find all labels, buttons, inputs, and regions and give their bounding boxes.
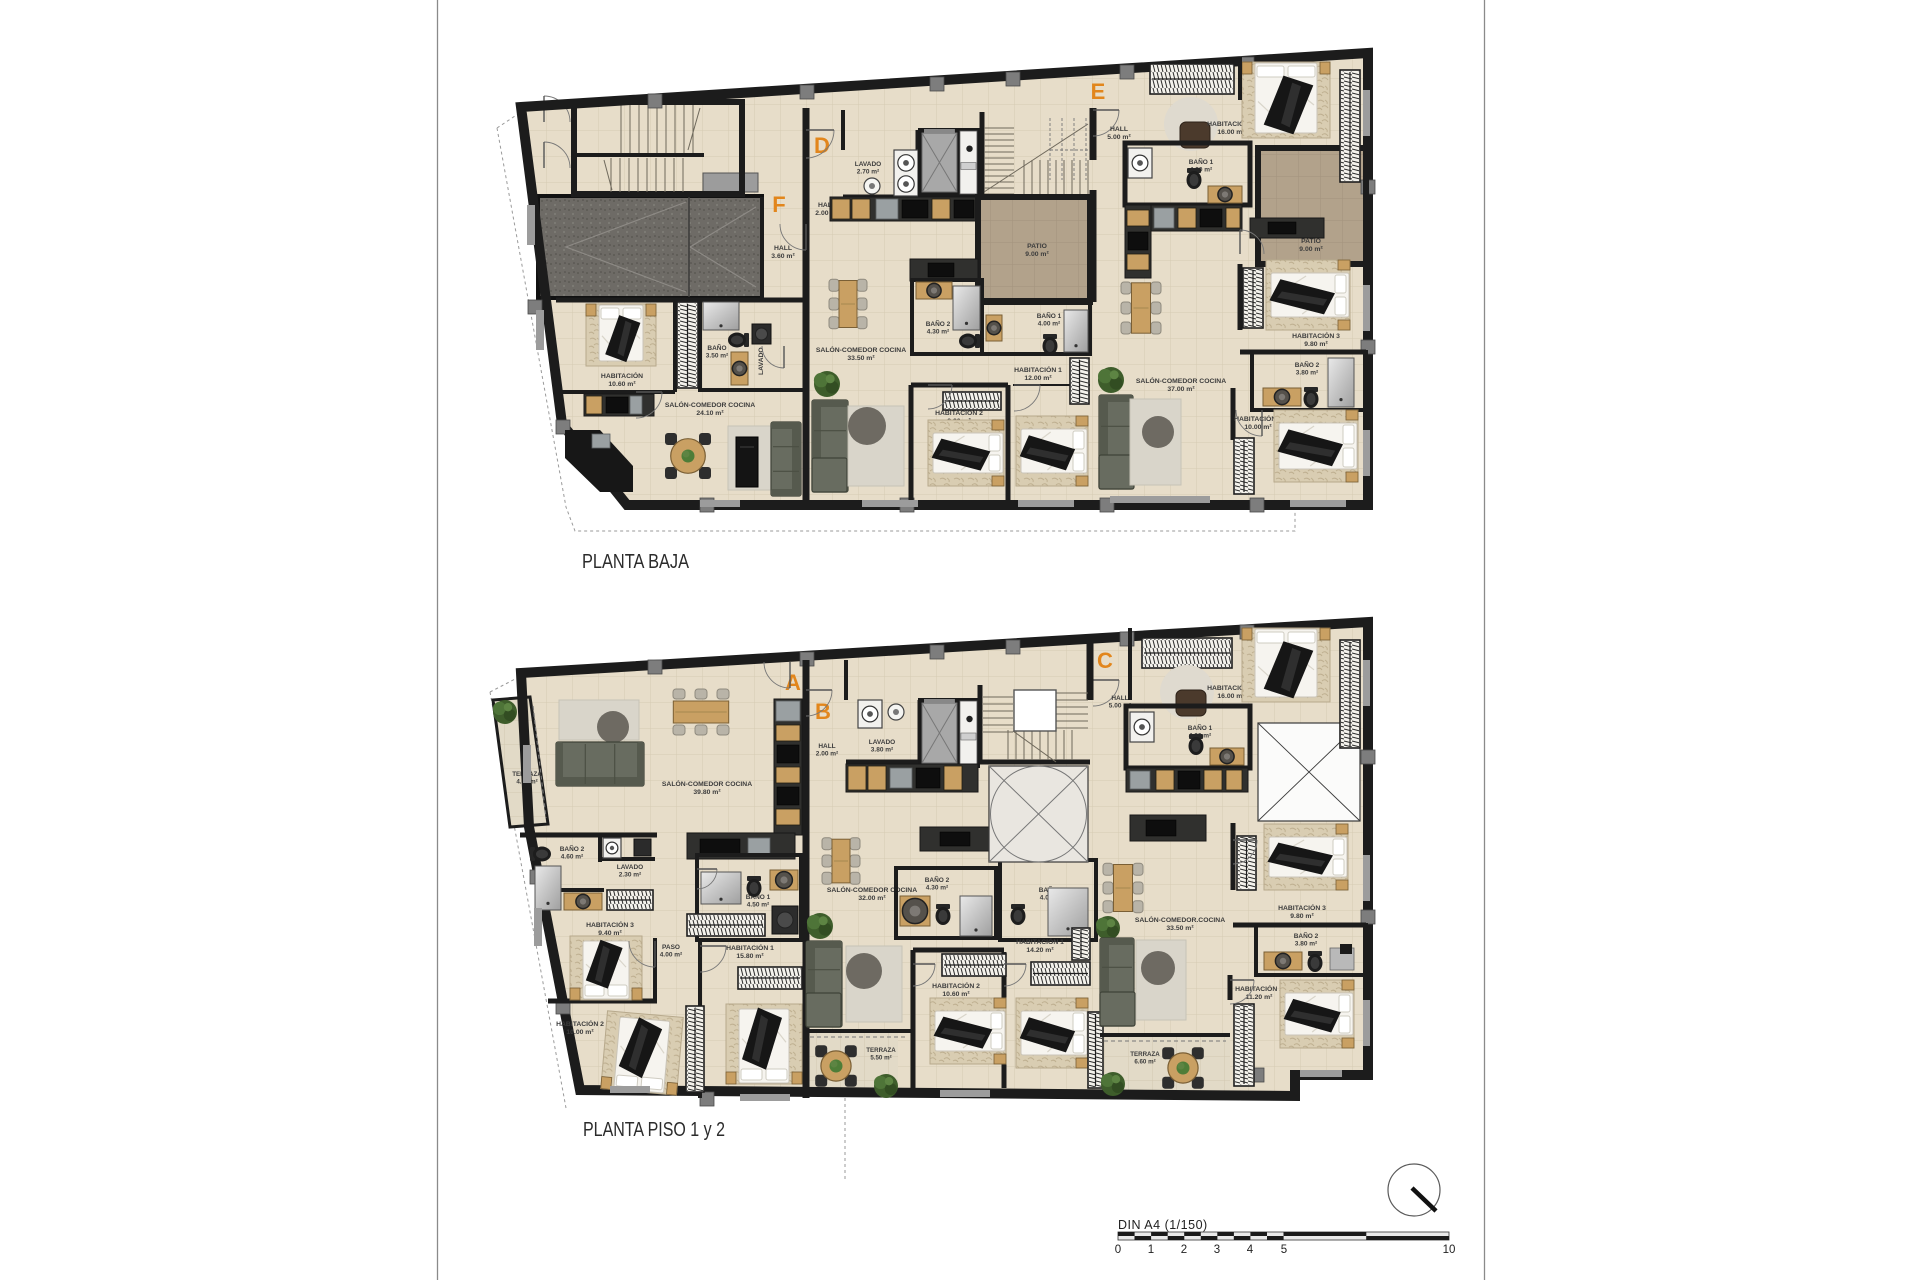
svg-text:LAVADO3.80 m²: LAVADO3.80 m² [869, 739, 895, 754]
svg-text:5: 5 [1281, 1244, 1287, 1256]
svg-text:3: 3 [1214, 1244, 1220, 1256]
svg-text:0: 0 [1115, 1244, 1121, 1256]
svg-text:BAÑO 24.60 m²: BAÑO 24.60 m² [560, 844, 585, 861]
svg-text:LAVADO2.70 m²: LAVADO2.70 m² [855, 161, 881, 176]
svg-text:BAÑO 24.30 m²: BAÑO 24.30 m² [926, 319, 951, 336]
svg-text:DIN A4 (1/150): DIN A4 (1/150) [1118, 1218, 1208, 1232]
svg-text:PASO4.00 m²: PASO4.00 m² [660, 944, 683, 959]
svg-text:HALL2.00 m²: HALL2.00 m² [816, 743, 839, 758]
svg-text:HALL5.00 m²: HALL5.00 m² [1107, 126, 1131, 141]
svg-text:BAÑO 23.80 m²: BAÑO 23.80 m² [1294, 931, 1319, 948]
svg-text:E: E [1091, 79, 1106, 104]
svg-text:2: 2 [1181, 1244, 1187, 1256]
svg-text:BAÑO 14.00 m²: BAÑO 14.00 m² [1037, 311, 1062, 328]
svg-text:C: C [1097, 648, 1113, 673]
svg-text:PLANTA BAJA: PLANTA BAJA [582, 551, 690, 573]
svg-text:BAÑO 23.80 m²: BAÑO 23.80 m² [1295, 360, 1320, 377]
svg-text:A: A [785, 670, 801, 695]
svg-text:BAÑO3.50 m²: BAÑO3.50 m² [706, 343, 729, 360]
svg-text:LAVADO2.30 m²: LAVADO2.30 m² [617, 864, 643, 879]
svg-text:4: 4 [1247, 1244, 1254, 1256]
svg-text:F: F [772, 192, 785, 217]
svg-text:10: 10 [1443, 1244, 1456, 1256]
svg-text:LAVADO: LAVADO [758, 347, 765, 375]
svg-text:BAÑO 24.30 m²: BAÑO 24.30 m² [925, 875, 950, 892]
svg-text:1: 1 [1148, 1244, 1154, 1256]
svg-text:PLANTA PISO 1 y 2: PLANTA PISO 1 y 2 [583, 1118, 725, 1141]
svg-text:PATIO9.00 m²: PATIO9.00 m² [1299, 238, 1323, 253]
svg-text:D: D [814, 133, 830, 158]
svg-text:PATIO9.00 m²: PATIO9.00 m² [1025, 243, 1049, 258]
svg-text:HALL3.60 m²: HALL3.60 m² [771, 245, 795, 260]
